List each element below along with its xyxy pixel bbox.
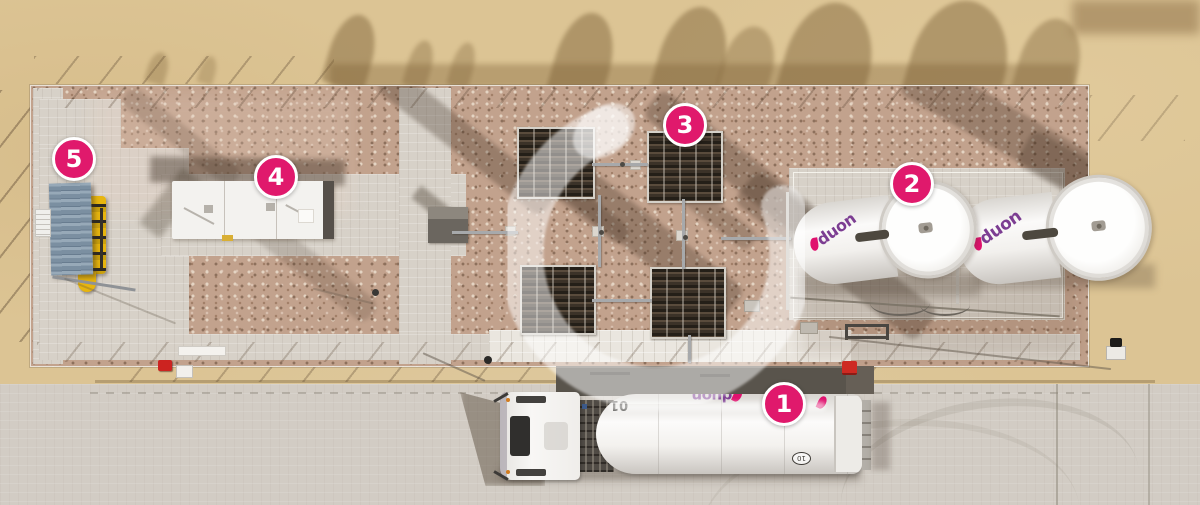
- marker-5-label: 5: [66, 145, 83, 173]
- cab-side-window: [516, 469, 546, 476]
- equipment-canopy-roof: [49, 182, 93, 275]
- roof-panel-joint: [224, 181, 225, 239]
- marker-2[interactable]: 2: [890, 162, 934, 206]
- fence-shadow-ticks-left: [0, 90, 34, 342]
- marker-1-label: 1: [776, 390, 793, 418]
- cabinet-top-face: [428, 207, 468, 219]
- trailer-rear-shadow: [872, 402, 890, 470]
- cab-marker-light: [506, 470, 510, 474]
- lamp-post: [372, 289, 379, 296]
- dark-ground-patch: [1072, 0, 1200, 34]
- pipe-valve: [599, 230, 604, 235]
- cab-side-window: [516, 396, 546, 403]
- fence-shadow-ticks-right: [1090, 95, 1185, 141]
- trailer-rear-frame: [862, 400, 871, 470]
- process-pipe: [682, 199, 685, 269]
- pump-detail-light: [582, 404, 587, 409]
- manifold-frame-bar: [100, 208, 103, 268]
- lng-tanker-truck: 01 duon 10: [440, 360, 900, 496]
- marker-1[interactable]: 1: [762, 382, 806, 426]
- platform-pipe: [700, 374, 730, 377]
- vaporizer-unit: [650, 267, 726, 339]
- fire-hydrant: [842, 361, 857, 375]
- lng-storage-tank: duon: [953, 170, 1154, 295]
- fence-shadow-ticks-top: [34, 56, 334, 84]
- process-pipe: [688, 335, 691, 363]
- lamp-base: [1106, 346, 1126, 360]
- lamp-head: [1110, 338, 1122, 347]
- cab-marker-light: [506, 398, 510, 402]
- yellow-pipe-stub: [222, 235, 233, 241]
- cab-roof-hatch: [544, 422, 568, 450]
- roof-vent: [204, 205, 213, 213]
- process-pipe: [452, 231, 518, 234]
- electrical-cabinet: [428, 207, 468, 243]
- cab-windshield: [510, 416, 530, 456]
- technical-building-roof: [172, 181, 334, 239]
- roof-hatch: [298, 209, 314, 223]
- marker-5[interactable]: 5: [52, 137, 96, 181]
- adr-badge: 10: [792, 452, 811, 465]
- tank-rear-panel: [834, 396, 862, 472]
- marker-4[interactable]: 4: [254, 155, 298, 199]
- railing-post: [886, 324, 889, 340]
- trailer-tank: 01 duon 10: [596, 394, 862, 474]
- pipe-valve: [683, 235, 688, 240]
- flex-hose: [920, 294, 970, 316]
- vaporizer-unit: [520, 265, 596, 335]
- marker-4-label: 4: [268, 163, 285, 191]
- pipe-valve: [620, 162, 625, 167]
- junction-box: [744, 300, 760, 312]
- white-cabinet: [35, 209, 51, 237]
- road-joint-line: [1148, 384, 1150, 505]
- platform-pipe: [590, 372, 630, 375]
- marker-3[interactable]: 3: [663, 103, 707, 147]
- truck-cab: [500, 392, 580, 480]
- white-barrier-plank: [178, 346, 226, 356]
- fence-shadow-ticks-inner-top: [37, 88, 1077, 108]
- marker-2-label: 2: [904, 170, 921, 198]
- cab-front-bumper: [500, 392, 507, 480]
- facility-photo: duon duon: [0, 0, 1200, 505]
- walkway-railing: [845, 324, 889, 327]
- fire-equipment-box: [158, 360, 172, 371]
- building-roof-dark-edge: [323, 181, 334, 239]
- junction-box: [800, 322, 818, 334]
- white-utility-box: [176, 365, 193, 378]
- roof-vent: [266, 203, 275, 211]
- marker-3-label: 3: [677, 111, 694, 139]
- process-pipe: [721, 237, 791, 240]
- vaporizer-unit: [517, 127, 595, 199]
- loading-platform-edge: [556, 366, 848, 396]
- process-pipe: [592, 299, 652, 302]
